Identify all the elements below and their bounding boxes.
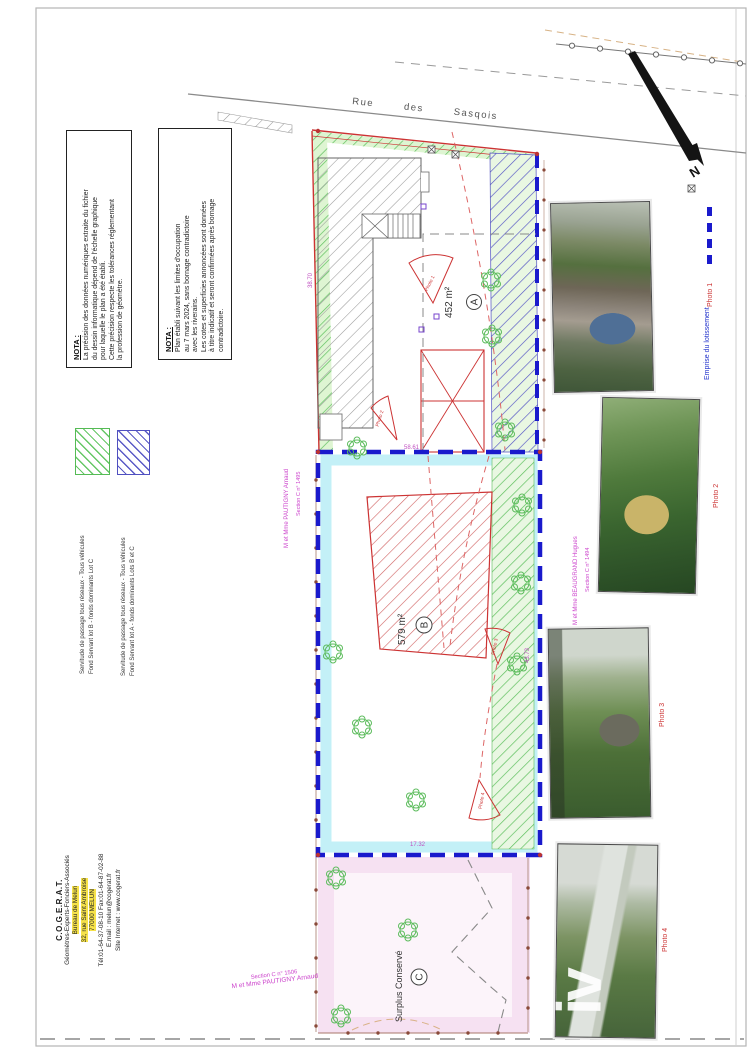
street-name-label: Rue des Sasqois — [352, 96, 499, 122]
legend-blue-line1: Servitude de passage tous réseaux - Tous… — [120, 471, 129, 676]
north-label: N — [687, 163, 703, 181]
cone-label-photo-4: Photo 4 — [478, 792, 487, 810]
photo-1-image — [550, 201, 654, 393]
company-line: Bureau de Melun — [72, 886, 79, 935]
neighbor-west-section: Section C n° 1495 — [296, 438, 302, 516]
nota-secondary-line: pour laquelle le plan a été établi. — [100, 138, 109, 360]
nota-box-secondary: NOTA : La précision des données numériqu… — [66, 130, 132, 368]
nota-secondary-line: la profession de géomètre. — [117, 138, 126, 360]
nota-box-primary: NOTA : Plan établi suivant les limites d… — [158, 128, 232, 360]
nota-secondary-line: La précision des données numériques extr… — [83, 138, 92, 360]
lot-c-letter: C — [415, 973, 426, 980]
photo-2-image — [598, 397, 700, 594]
photo-2-label: Photo 2 — [713, 456, 720, 508]
photo-3-image — [548, 627, 652, 818]
neighbor-west-owner: M et Mme PAUTIGNY Arnaud — [284, 436, 290, 548]
neighbor-east-owner: M et Mme BEAUGRAND Hugues — [573, 495, 579, 625]
nota-secondary-line: Cette précision respecte les tolérances … — [109, 138, 118, 360]
lot-c-label: Surplus Conservé — [394, 950, 404, 1022]
dim-lot-b-east: 43.73 — [525, 647, 531, 663]
photo-4-image: iv — [555, 843, 659, 1038]
north-arrow: N — [628, 51, 704, 181]
cone-label-photo-2: Photo 2 — [375, 410, 386, 428]
company-line: Géomètres-Experts-Fonciers-Associés — [64, 814, 72, 1006]
company-line: 77000 MELUN — [89, 889, 96, 931]
company-line: Tél:01-64-37-08-10 Fax:01-64-87-02-88 — [98, 814, 106, 1006]
legend-entry-blue: Servitude de passage tous réseaux - Tous… — [120, 471, 137, 676]
neighbor-east-section: Section C n° 1494 — [585, 526, 591, 592]
nota-primary-line: Les cotes et superficies annoncées sont … — [201, 136, 210, 352]
legend-swatch-green-hatch — [75, 428, 110, 475]
watermark-logo: iv — [544, 971, 616, 1016]
nota-primary-title: NOTA : — [164, 136, 173, 352]
nota-primary-line: à titre indicatif et seront confirmées a… — [209, 136, 218, 352]
nota-secondary-line: du dessin informatique dépend de l'échel… — [92, 138, 101, 360]
nota-secondary-title: NOTA : — [72, 138, 81, 360]
company-line: 32, rue Saint Ambroise — [81, 878, 88, 943]
nota-primary-line: contradictoire. — [218, 136, 227, 352]
company-line: Site Internet : www.cogerat.fr — [115, 814, 123, 1006]
lot-b-letter: B — [420, 621, 431, 628]
street-lines — [188, 30, 746, 153]
survey-plan-page: N Rue des Sasqois — [0, 0, 750, 1056]
legend-swatch-blue-hatch — [117, 430, 150, 475]
dim-lot-b-south: 17.32 — [410, 842, 426, 848]
photo-4-label: Photo 4 — [662, 900, 669, 952]
lot-a-letter: A — [470, 298, 481, 305]
legend-entry-green: Servitude de passage tous réseaux - Tous… — [79, 476, 96, 674]
company-info-block: C.O.G.E.R.A.T. Géomètres-Experts-Foncier… — [55, 814, 123, 1006]
cone-label-photo-1: Photo 1 — [424, 275, 437, 293]
company-line: E.mail : melun@cogerat.fr — [106, 814, 114, 1006]
nota-primary-line: au 7 mars 2024, sans bornage contradicto… — [184, 136, 193, 352]
legend-blue-line2: Fond Servant lot A - fonds dominants Lot… — [129, 471, 138, 676]
nota-primary-line: Plan établi suivant les limites d'occupa… — [175, 136, 184, 352]
nota-primary-line: avec les riverains. — [192, 136, 201, 352]
dim-lot-a-west: 38.70 — [308, 272, 314, 288]
legend-green-line2: Fond Servant lot B - fonds dominants Lot… — [88, 476, 97, 674]
dim-lot-b-north: 58.61 — [404, 445, 420, 451]
legend-green-line1: Servitude de passage tous réseaux - Tous… — [79, 476, 88, 674]
lot-b-area: 579 m² — [397, 613, 408, 645]
fence-posts-line — [556, 43, 746, 66]
photo-1-label: Photo 1 — [707, 255, 714, 307]
company-name: C.O.G.E.R.A.T. — [55, 814, 64, 1006]
photo-3-label: Photo 3 — [659, 675, 666, 727]
lot-a-area: 452 m² — [444, 286, 455, 318]
